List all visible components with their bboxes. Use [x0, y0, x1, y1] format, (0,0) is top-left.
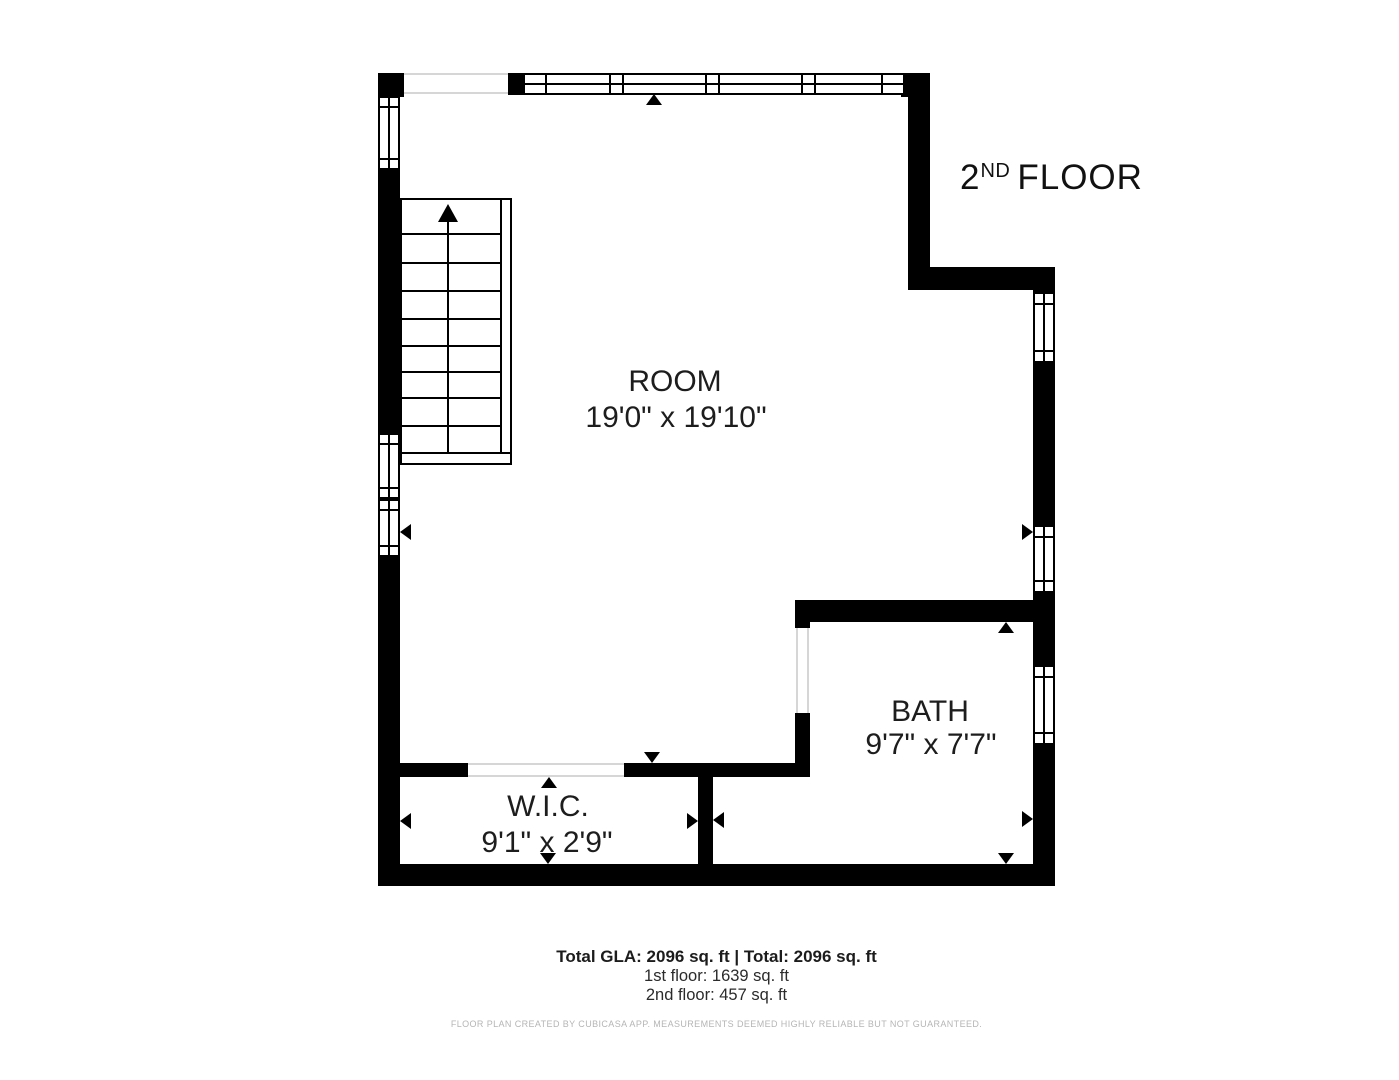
second-floor-line: 2nd floor: 457 sq. ft	[378, 986, 1055, 1005]
room-name: ROOM	[628, 365, 721, 399]
wall-right-seg-2	[1033, 363, 1055, 525]
arrow-right-icon	[1022, 811, 1033, 827]
floor-title: 2NDFLOOR	[960, 158, 1143, 198]
arrow-right-icon	[687, 813, 698, 829]
window	[378, 96, 400, 170]
summary-block: Total GLA: 2096 sq. ft | Total: 2096 sq.…	[378, 946, 1055, 1029]
wall-wic-top-right	[624, 763, 810, 777]
stairs-up-arrow-icon	[438, 204, 458, 222]
floor-ordinal-suffix: ND	[980, 160, 1010, 182]
first-floor-line: 1st floor: 1639 sq. ft	[378, 967, 1055, 986]
wall-left-lower	[378, 557, 400, 864]
wall-left-middle	[378, 170, 400, 433]
total-gla-line: Total GLA: 2096 sq. ft | Total: 2096 sq.…	[378, 946, 1055, 967]
wall-right-seg-1	[1033, 267, 1055, 292]
wall-bottom	[378, 864, 1055, 886]
window	[1033, 665, 1055, 745]
wall-wic-bath-divider	[698, 777, 713, 864]
wall-bath-left-stub	[795, 600, 810, 628]
staircase	[400, 198, 512, 465]
wall-corner-top-left	[378, 73, 404, 97]
bath-name: BATH	[891, 695, 969, 729]
arrow-down-icon	[644, 752, 660, 763]
opening-top-edge	[404, 92, 508, 94]
wic-name: W.I.C.	[507, 790, 589, 824]
opening-top-edge	[404, 73, 508, 75]
arrow-up-icon	[646, 94, 662, 105]
wall-bath-top	[795, 600, 1055, 622]
wall-wic-top-left	[378, 763, 468, 777]
opening-bath-door-edge	[807, 628, 809, 713]
arrow-left-icon	[400, 524, 411, 540]
wall-right-upper	[908, 73, 930, 290]
window-ribbon	[523, 73, 905, 95]
disclaimer-text: FLOOR PLAN CREATED BY CUBICASA APP. MEAS…	[378, 1019, 1055, 1029]
opening-bath-door-edge	[796, 628, 798, 713]
window	[378, 433, 400, 499]
arrow-up-icon	[541, 777, 557, 788]
bath-dims: 9'7" x 7'7"	[865, 728, 996, 762]
arrow-right-icon	[1022, 524, 1033, 540]
arrow-left-icon	[713, 812, 724, 828]
window	[378, 499, 400, 557]
floor-number: 2	[960, 158, 980, 197]
wic-dims: 9'1" x 2'9"	[481, 826, 612, 860]
floor-word: FLOOR	[1017, 158, 1143, 197]
opening-wic-door-edge	[468, 763, 624, 765]
arrow-up-icon	[998, 622, 1014, 633]
window	[1033, 525, 1055, 593]
arrow-left-icon	[400, 813, 411, 829]
floor-plan-canvas: ROOM 19'0" x 19'10" BATH 9'7" x 7'7" W.I…	[0, 0, 1399, 1080]
room-dims: 19'0" x 19'10"	[585, 401, 766, 435]
arrow-down-icon	[998, 853, 1014, 864]
window	[1033, 292, 1055, 363]
